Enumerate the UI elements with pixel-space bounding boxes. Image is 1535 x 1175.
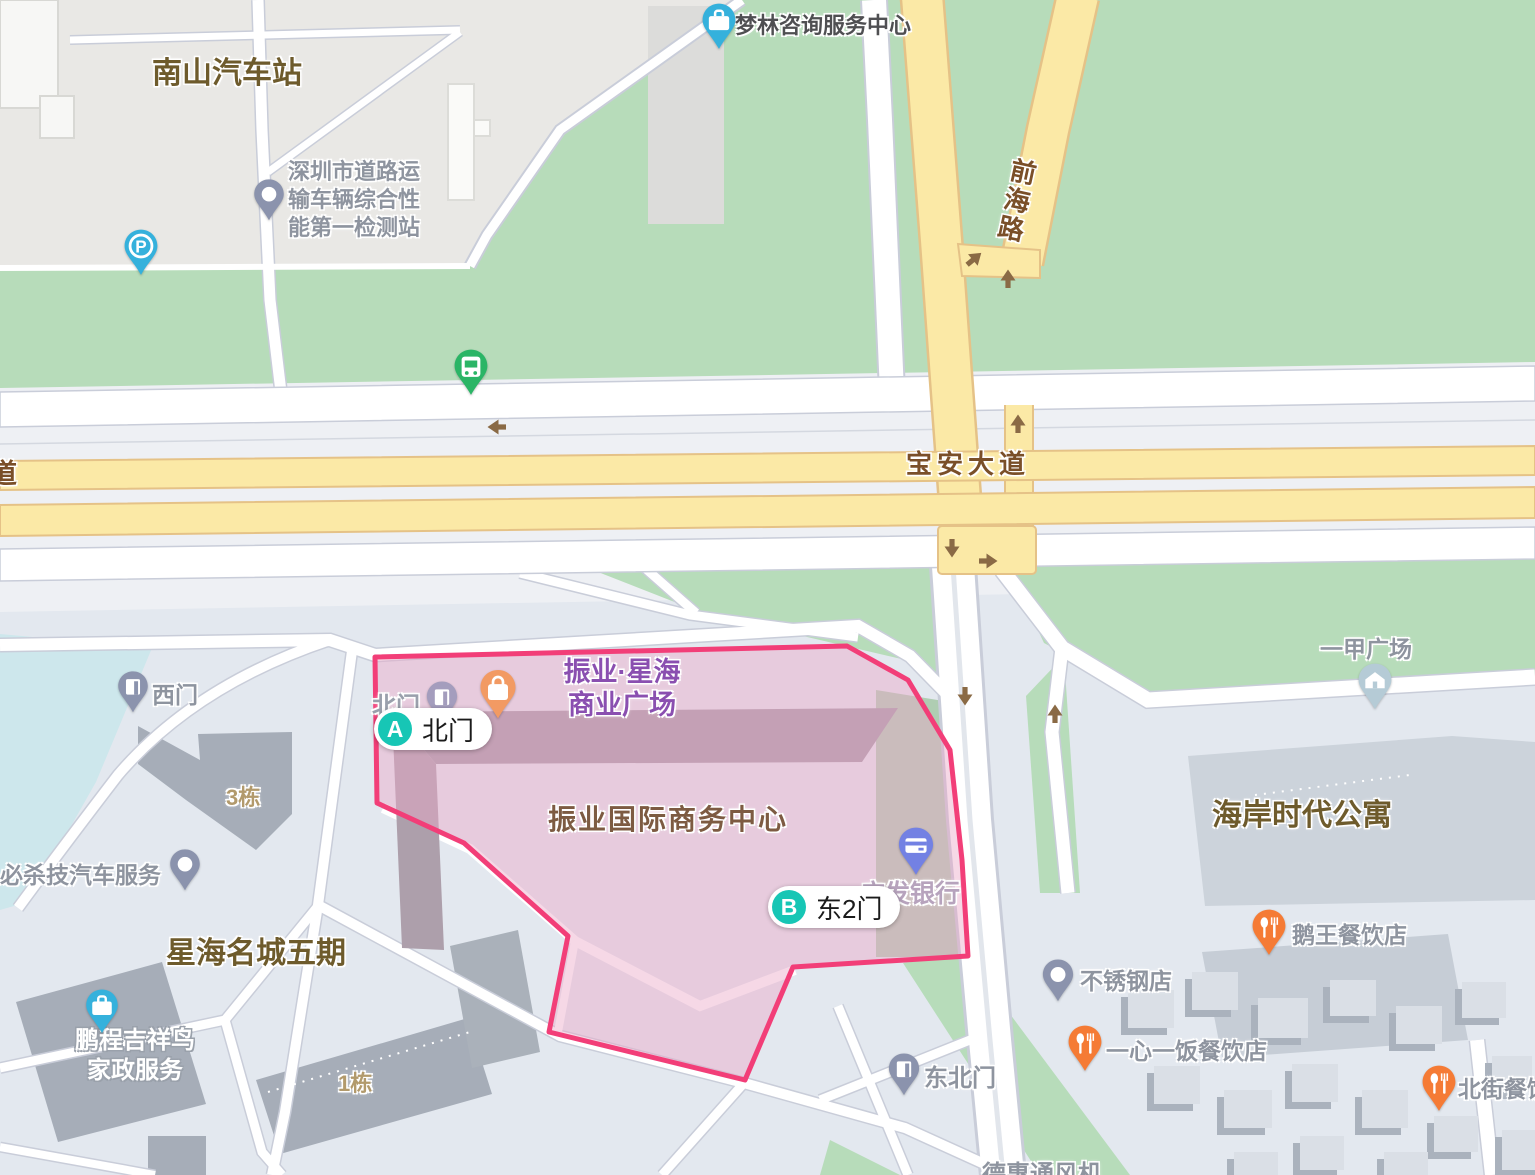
yijia-house-pin-icon[interactable] [1356, 662, 1394, 712]
label-pengcheng: 鹏程吉祥鸟 家政服务 [30, 1026, 240, 1086]
buxiugang-pin-icon[interactable] [1040, 958, 1076, 1004]
gf-bank-card-pin-icon[interactable] [896, 826, 936, 878]
label-beijie: 北街餐饮店 [1458, 1070, 1535, 1104]
ewang-restaurant-pin-icon[interactable] [1250, 908, 1288, 958]
bus-stop-pin-icon[interactable] [452, 348, 490, 398]
label-building-3: 3栋 [226, 780, 260, 812]
label-haian-apartment: 海岸时代公寓 [1212, 790, 1392, 834]
marker-a-label: 北门 [422, 711, 474, 748]
west-gate-door-icon[interactable] [116, 670, 150, 715]
beijie-restaurant-pin-icon[interactable] [1420, 1064, 1458, 1114]
map-base-layer [0, 0, 1535, 1175]
label-dehuitong: 德惠通风机 [982, 1154, 1102, 1175]
menglin-briefcase-pin-icon[interactable] [700, 2, 738, 52]
pengcheng-briefcase-pin-icon[interactable] [84, 988, 120, 1036]
label-dongbeimen: 东北门 [924, 1058, 996, 1093]
marker-a-badge: A [378, 712, 412, 746]
svg-text:P: P [135, 236, 146, 256]
parking-pin-icon[interactable]: P [122, 228, 160, 278]
label-yijia-plaza: 一甲广场 [1320, 630, 1412, 664]
northeast-gate-door-icon[interactable] [886, 1052, 922, 1098]
marker-b-label: 东2门 [816, 889, 882, 926]
yixinyifan-restaurant-pin-icon[interactable] [1066, 1024, 1104, 1074]
label-inspection-station: 深圳市道路运 输车辆综合性 能第一检测站 [288, 158, 420, 242]
label-zhenye-plaza: 振业·星海 商业广场 [492, 656, 752, 722]
marker-a-north-gate[interactable]: A 北门 [374, 708, 492, 750]
label-menglin: 梦林咨询服务中心 [735, 8, 911, 40]
label-building-1: 1栋 [338, 1066, 372, 1098]
label-buxiugang: 不锈钢店 [1080, 962, 1172, 996]
label-ewang: 鹅王餐饮店 [1292, 916, 1407, 950]
label-xinghai-mingcheng: 星海名城五期 [166, 928, 346, 972]
map-canvas[interactable]: 南山汽车站 深圳市道路运 输车辆综合性 能第一检测站 梦林咨询服务中心 前海路 … [0, 0, 1535, 1175]
label-zhenye-center: 振业国际商务中心 [548, 798, 788, 838]
label-baoan-avenue: 宝安大道 [906, 444, 1030, 481]
marker-b-east-gate-2[interactable]: B 东2门 [768, 886, 900, 928]
label-nanshan-bus-station: 南山汽车站 [152, 48, 302, 92]
marker-b-badge: B [772, 890, 806, 924]
label-yixinyifan: 一心一饭餐饮店 [1106, 1032, 1267, 1066]
label-ximen: 西门 [152, 676, 198, 710]
label-dao-partial: 道 [0, 452, 17, 491]
label-bishaji: 必杀技汽车服务 [0, 856, 161, 890]
inspection-station-pin-icon[interactable] [252, 178, 286, 223]
bishaji-pin-icon[interactable] [168, 848, 202, 893]
